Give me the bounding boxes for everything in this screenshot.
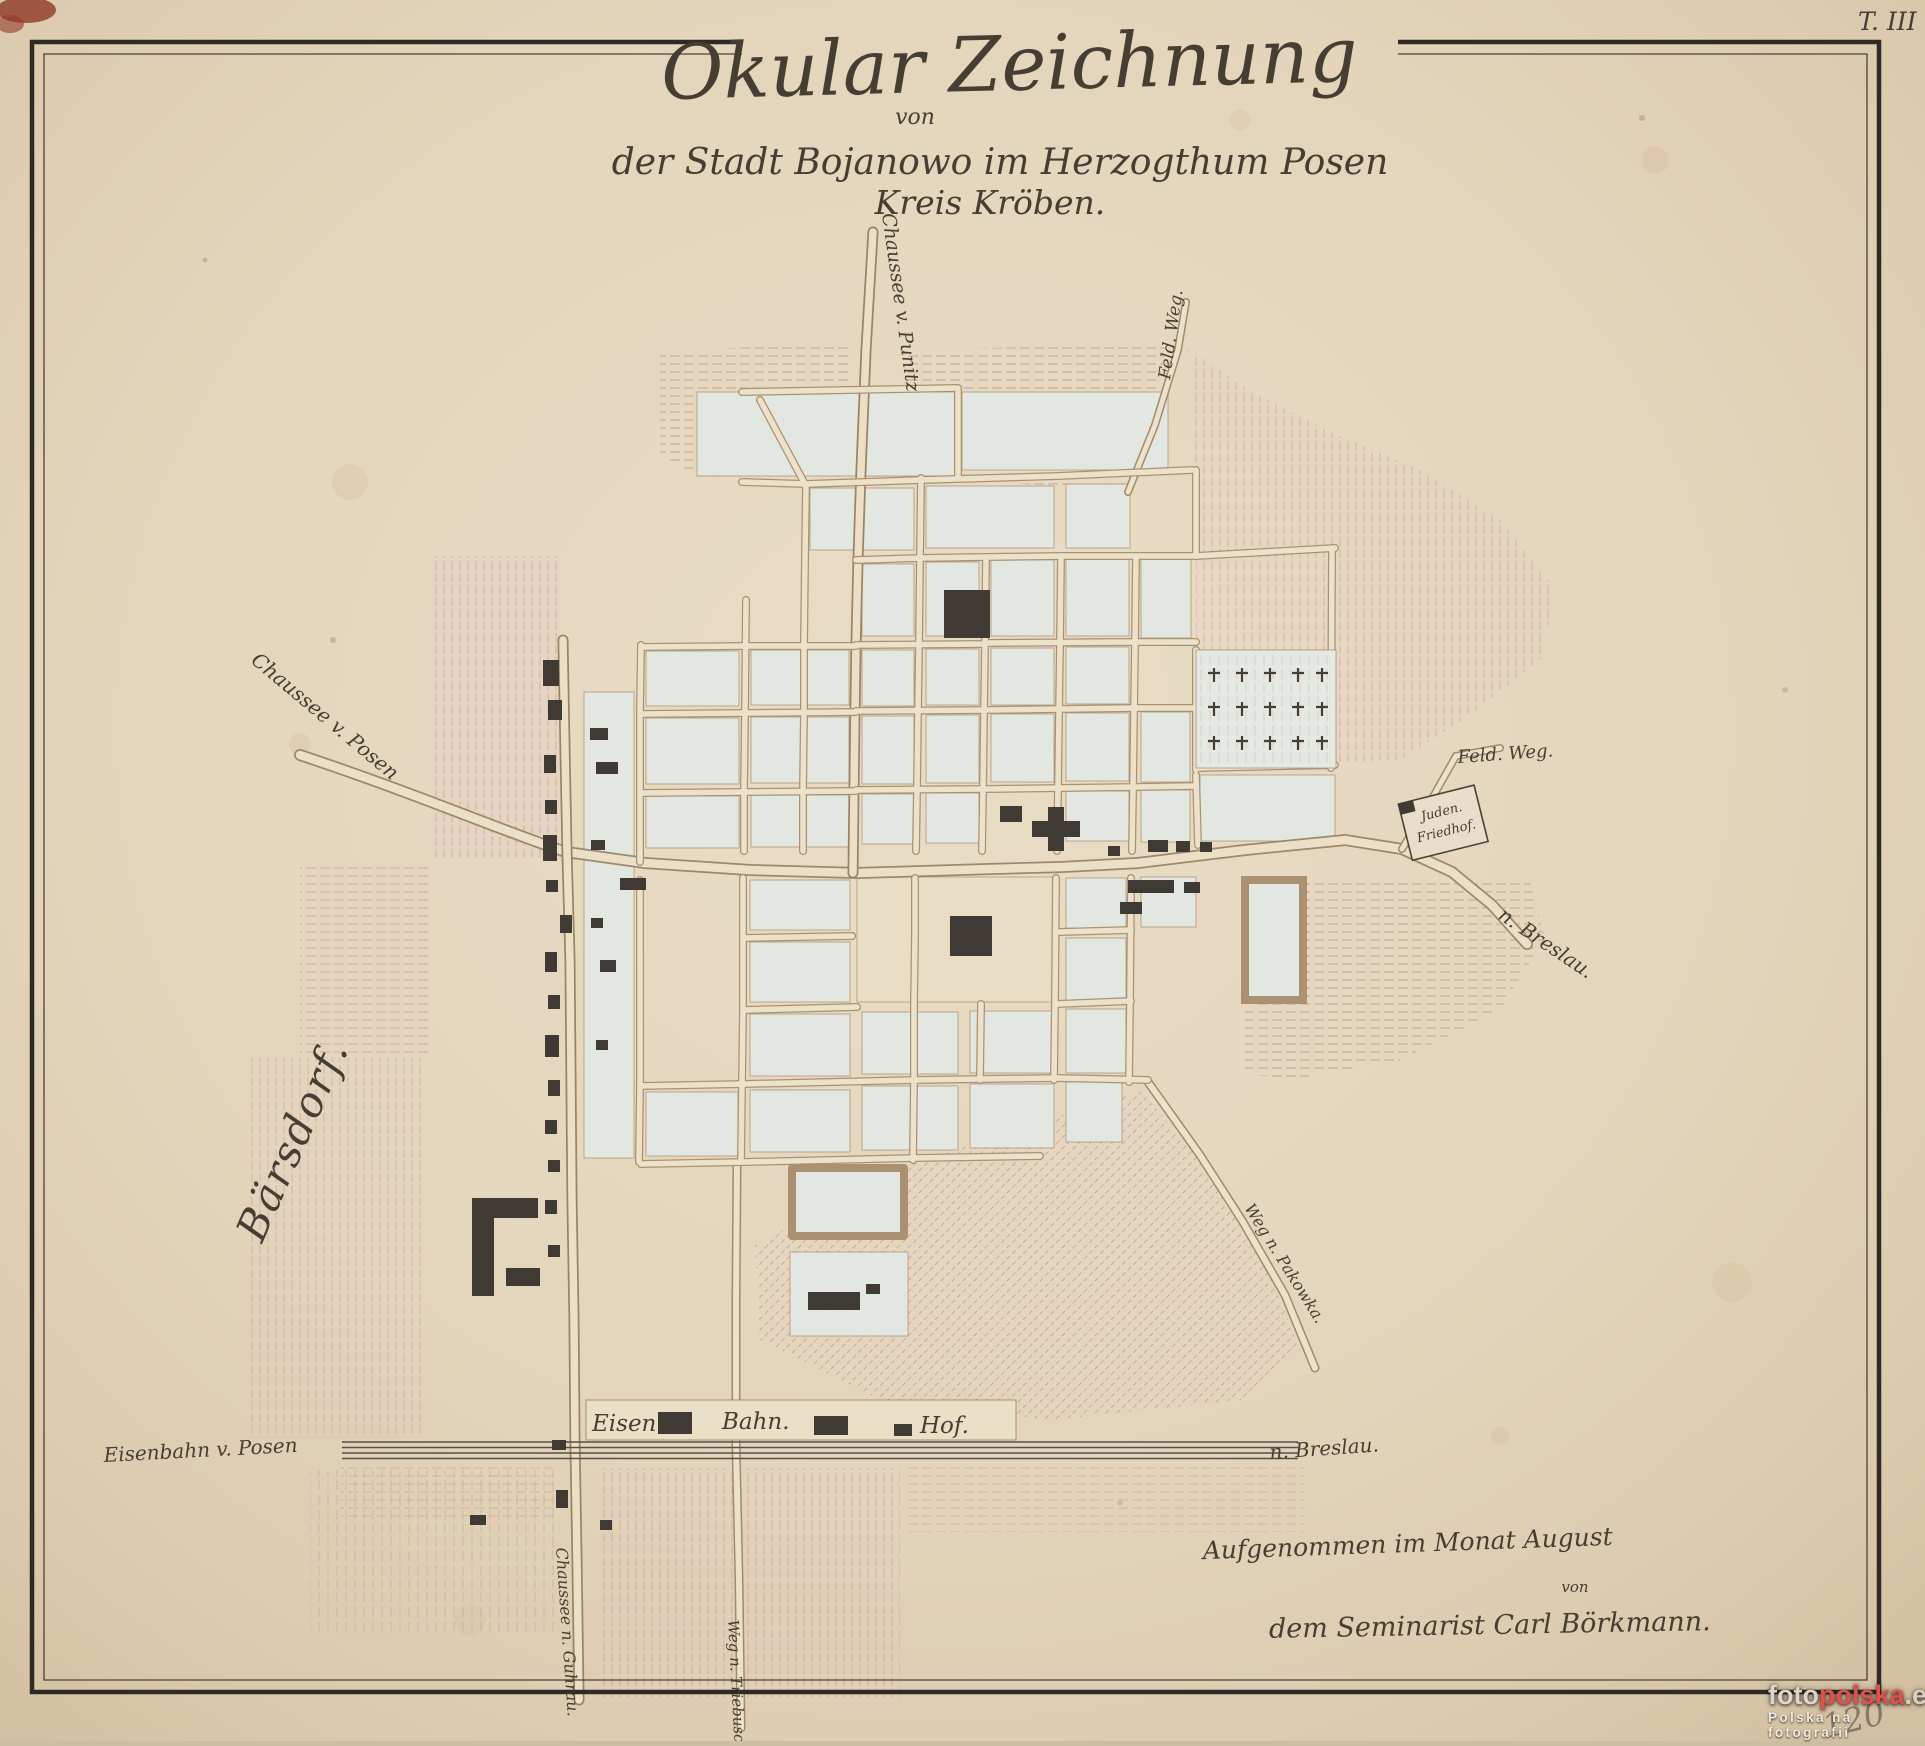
title-von: von <box>895 105 935 130</box>
town-hall-building <box>950 916 992 956</box>
title-kreis: Kreis Kröben. <box>874 183 1106 222</box>
watermark-polska: polska <box>1819 1680 1905 1710</box>
title-subtitle: der Stadt Bojanowo im Herzogthum Posen <box>612 142 1389 183</box>
watermark-brand: fotopolska.eu <box>1768 1681 1925 1709</box>
sheet-mark: T. III <box>1858 7 1918 36</box>
watermark-eu: .eu <box>1905 1680 1925 1710</box>
station-building-3 <box>894 1424 912 1436</box>
label-station-hof: Hof. <box>919 1413 969 1439</box>
map-title: Okular Zeichnung <box>660 10 1359 117</box>
map-canvas: Juden. Friedhof. Okular Zeichnung von de… <box>0 0 1925 1741</box>
watermark-foto: foto <box>1768 1680 1819 1710</box>
label-station-bahn: Bahn. <box>721 1409 790 1435</box>
station-building-2 <box>814 1416 848 1435</box>
watermark-fotopolska: fotopolska.eu Polska na fotografii <box>1768 1681 1925 1740</box>
large-north-building <box>944 590 990 638</box>
label-station-eisen: Eisen. <box>591 1411 664 1437</box>
cemetery-group <box>1196 650 1336 768</box>
watermark-tagline: Polska na fotografii <box>1768 1711 1925 1739</box>
map-sheet: Juden. Friedhof. Okular Zeichnung von de… <box>0 0 1925 1741</box>
attribution-line-2: von <box>1561 1578 1588 1596</box>
